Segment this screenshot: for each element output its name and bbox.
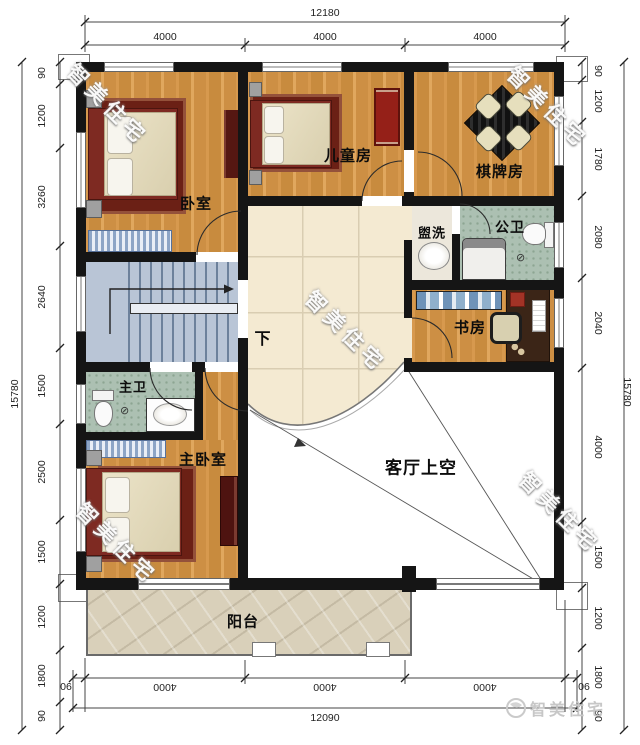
dim-right-total: 15780 [621,377,633,406]
dim-right-segment: 1780 [592,147,604,170]
master-wardrobe [220,476,238,546]
window-stair-left [76,276,86,332]
master-pillow [105,477,130,513]
public-bath-toilet-bowl [522,223,546,245]
dim-bottom-segment: 4000 [313,681,336,693]
room-label-bedroom: 卧室 [180,193,212,214]
room-label-public-bath: 公卫 [495,217,525,237]
dim-right-segment: 90 [592,65,604,77]
dim-top-total: 12180 [310,7,339,19]
dim-top-segment: 4000 [153,31,176,43]
wall-master-bath-south [76,432,203,440]
floor-plan: ⊘ ⊘ [0,0,640,745]
wall-kids-chess [404,72,414,150]
kids-nightstand [249,170,262,185]
dim-bottom-segment: 4000 [153,681,176,693]
master-bath-toilet-bowl [94,401,113,427]
wash-sink [418,242,450,270]
window-master-bath-left [76,384,86,424]
dim-left-total: 15780 [9,379,21,408]
dim-left-segment: 1200 [36,605,48,628]
window-public-bath-right [554,222,564,268]
dim-left-segment: 1200 [36,104,48,127]
dim-bottom-total: 12090 [310,712,339,724]
kids-cabinet [374,88,400,146]
dim-left-segment: 2500 [36,460,48,483]
dim-left-segment: 1500 [36,540,48,563]
kids-nightstand [249,82,262,97]
room-label-living-void: 客厅上空 [385,454,457,479]
room-label-chess-room: 棋牌房 [476,161,524,182]
wall-stair-south-b [192,362,205,372]
wall-study-west-a [404,290,412,318]
dim-right-segment: 2080 [592,225,604,248]
dim-left-segment: 2640 [36,285,48,308]
desk-tea-set [510,342,526,356]
floor-drain-icon: ⊘ [120,404,129,417]
dim-right-segment: 2040 [592,311,604,334]
dim-top-segment: 4000 [473,31,496,43]
dim-left-segment: 1500 [36,374,48,397]
wall-master-east [238,362,248,578]
stair-railing [130,303,238,314]
dim-bottom-offset: 90 [60,680,72,692]
master-nightstand [86,450,102,466]
wall-bedroom-south-a [76,252,196,262]
dim-right-segment: 1800 [592,665,604,688]
wall-balcony-living-stub [402,566,416,592]
dim-right-segment: 4000 [592,435,604,458]
dim-left-segment: 90 [36,710,48,722]
window-study-right [554,298,564,348]
wall-stair-east-stub-top [238,252,248,280]
window-living-bottom [436,578,540,590]
room-label-balcony: 阳台 [227,611,259,632]
dim-right-segment: 1200 [592,89,604,112]
room-label-wash-area: 盥洗 [418,223,446,242]
stairs-down-label: 下 [254,325,271,349]
wall-top-rooms-south-a [248,196,362,206]
washing-machine [462,238,506,280]
dim-bottom-segment: 4000 [473,681,496,693]
master-bath-sink [153,403,187,426]
dim-left-segment: 1800 [36,664,48,687]
master-bath-toilet-tank [92,390,114,401]
desk-papers [532,300,546,332]
room-label-study: 书房 [454,317,486,338]
dim-bottom-offset: 90 [578,680,590,692]
wall-study-south [404,362,564,372]
dim-left-segment: 3260 [36,185,48,208]
wall-bath-study-divider [404,280,564,290]
window-bedroom-top [104,62,174,72]
bookshelf [416,291,502,310]
bedroom-window-seat [88,230,172,252]
kids-pillow [264,106,284,134]
wall-wash-west-stub [404,240,412,280]
brand-logo-text: 智美住宅 [530,696,606,720]
wall-stair-south-a [76,362,150,372]
balcony-post [252,642,276,657]
window-kids-top [262,62,342,72]
desk-red-mat [510,292,525,307]
dim-top-segment: 4000 [313,31,336,43]
room-label-master-bath: 主卫 [119,377,147,396]
master-corridor-floor [203,372,238,440]
kids-pillow [264,136,284,164]
master-nightstand [86,556,102,572]
bedroom-tv-cabinet [224,110,238,178]
room-label-kids-room: 儿童房 [324,145,372,166]
room-label-master-bedroom: 主卧室 [179,449,227,470]
wall-master-bath-east [195,372,203,432]
floor-drain-icon: ⊘ [516,251,525,264]
dim-left-segment: 90 [36,67,48,79]
bedroom-nightstand [86,200,102,218]
wall-top-rooms-south-b [402,196,564,206]
dim-right-segment: 1200 [592,606,604,629]
balcony-post [366,642,390,657]
bedroom-pillow [107,158,133,196]
wall-bedroom-kids [238,72,248,252]
study-chair [490,312,522,344]
wall-stair-east-stub-bottom [238,338,248,362]
wall-wash-bath-divider [452,234,460,280]
window-bedroom-left [76,132,86,208]
